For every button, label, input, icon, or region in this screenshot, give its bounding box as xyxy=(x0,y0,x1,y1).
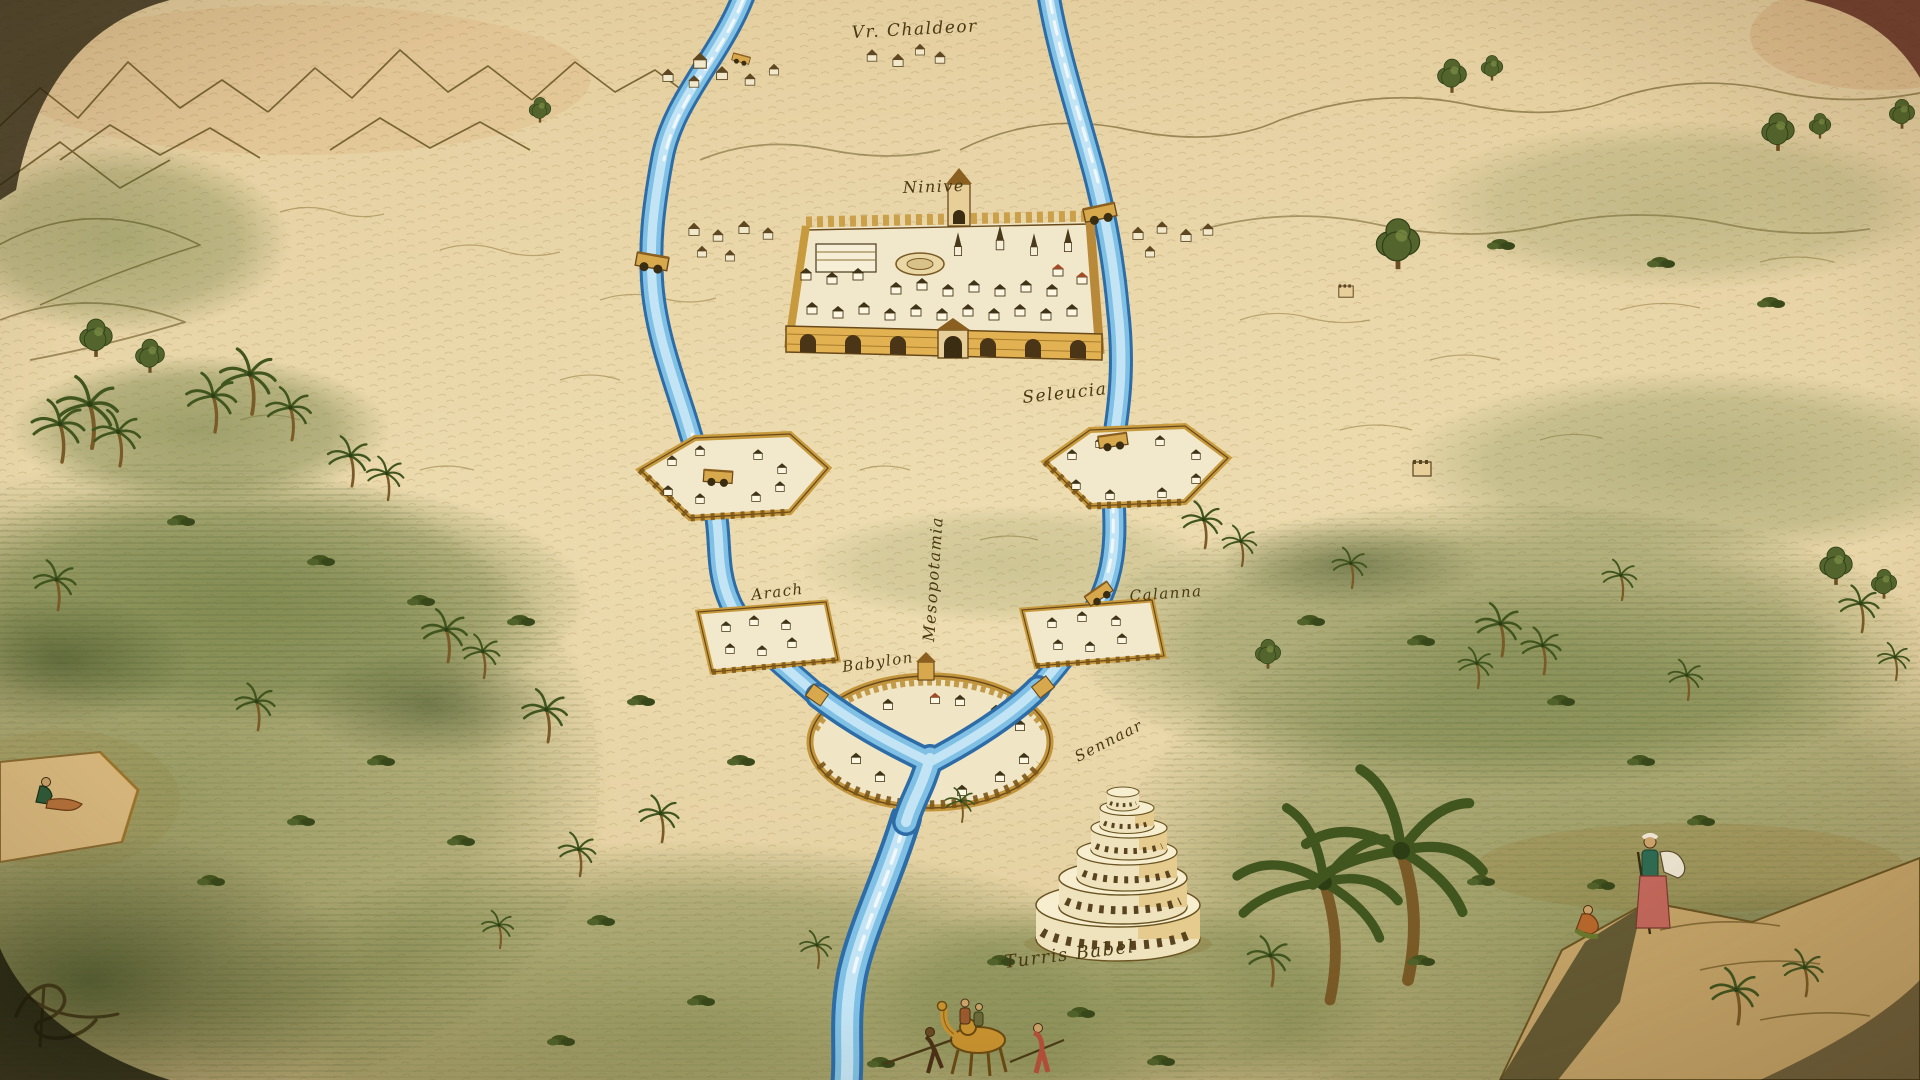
antique-map-canvas: Vr. Chaldeor Ninive Seleucia Mesopotamia… xyxy=(0,0,1920,1080)
page-vignette xyxy=(0,0,1920,1080)
map-engraving: Vr. Chaldeor Ninive Seleucia Mesopotamia… xyxy=(0,0,1920,1080)
